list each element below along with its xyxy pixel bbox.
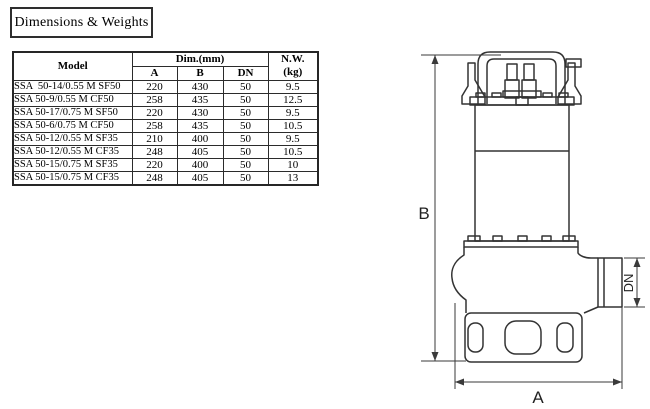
cell-a: 220 bbox=[132, 158, 177, 171]
cell-b: 400 bbox=[177, 158, 223, 171]
mounting-flange bbox=[464, 236, 578, 247]
cell-dn: 50 bbox=[223, 106, 268, 119]
cell-model: SSA 50-9/0.55 M CF50 bbox=[13, 93, 132, 106]
section-title: Dimensions & Weights bbox=[14, 15, 148, 31]
datasheet-page: Dimensions & Weights Model Dim.(mm) N.W.… bbox=[0, 0, 650, 409]
col-header-model: Model bbox=[13, 52, 132, 80]
cell-model: SSA 50-12/0.55 M SF35 bbox=[13, 132, 132, 145]
pump-base bbox=[465, 313, 582, 362]
cell-a: 258 bbox=[132, 93, 177, 106]
table-row: SSA 50-17/0.75 M SF50 220 430 50 9.5 bbox=[13, 106, 318, 119]
cell-dn: 50 bbox=[223, 145, 268, 158]
table-header-row-1: Model Dim.(mm) N.W. (kg) bbox=[13, 52, 318, 66]
motor-body bbox=[475, 105, 569, 241]
cell-dn: 50 bbox=[223, 132, 268, 145]
dimensions-weights-table: Model Dim.(mm) N.W. (kg) A B DN SSA 50-1… bbox=[12, 51, 319, 186]
col-header-nw-line2: (kg) bbox=[269, 66, 318, 79]
cell-dn: 50 bbox=[223, 93, 268, 106]
cell-b: 405 bbox=[177, 171, 223, 185]
cell-a: 220 bbox=[132, 106, 177, 119]
cell-model: SSA 50-15/0.75 M SF35 bbox=[13, 158, 132, 171]
cell-dn: 50 bbox=[223, 158, 268, 171]
col-header-nw-line1: N.W. bbox=[269, 53, 318, 66]
dimension-b-label: B bbox=[418, 204, 429, 223]
cell-model: SSA 50-17/0.75 M SF50 bbox=[13, 106, 132, 119]
cell-dn: 50 bbox=[223, 119, 268, 132]
col-header-a: A bbox=[132, 66, 177, 80]
cell-b: 405 bbox=[177, 145, 223, 158]
cell-nw: 12.5 bbox=[268, 93, 318, 106]
pump-technical-drawing: B A DN bbox=[405, 40, 650, 409]
cell-a: 210 bbox=[132, 132, 177, 145]
discharge-flange bbox=[598, 258, 622, 307]
cell-model: SSA 50-15/0.75 M CF35 bbox=[13, 171, 132, 185]
cell-nw: 10.5 bbox=[268, 119, 318, 132]
table-row: SSA 50-12/0.55 M CF35 248 405 50 10.5 bbox=[13, 145, 318, 158]
table-row: SSA 50-6/0.75 M CF50 258 435 50 10.5 bbox=[13, 119, 318, 132]
cell-b: 430 bbox=[177, 80, 223, 93]
table-row: SSA 50-15/0.75 M CF35 248 405 50 13 bbox=[13, 171, 318, 185]
cell-nw: 9.5 bbox=[268, 80, 318, 93]
cell-b: 435 bbox=[177, 119, 223, 132]
cell-nw: 9.5 bbox=[268, 106, 318, 119]
table-row: SSA 50-14/0.55 M SF50 220 430 50 9.5 bbox=[13, 80, 318, 93]
cell-a: 248 bbox=[132, 171, 177, 185]
col-header-nw: N.W. (kg) bbox=[268, 52, 318, 80]
col-header-dn: DN bbox=[223, 66, 268, 80]
dimension-a-label: A bbox=[532, 388, 544, 407]
cell-nw: 10.5 bbox=[268, 145, 318, 158]
section-title-box: Dimensions & Weights bbox=[10, 7, 153, 38]
cable-glands bbox=[505, 64, 536, 98]
cell-model: SSA 50-12/0.55 M CF35 bbox=[13, 145, 132, 158]
dimension-a: A bbox=[455, 303, 622, 407]
cell-a: 248 bbox=[132, 145, 177, 158]
pump-handle bbox=[478, 52, 581, 104]
cell-nw: 9.5 bbox=[268, 132, 318, 145]
cell-b: 400 bbox=[177, 132, 223, 145]
table-row: SSA 50-12/0.55 M SF35 210 400 50 9.5 bbox=[13, 132, 318, 145]
volute-casing bbox=[452, 247, 598, 313]
cell-b: 435 bbox=[177, 93, 223, 106]
cell-dn: 50 bbox=[223, 171, 268, 185]
cell-a: 220 bbox=[132, 80, 177, 93]
cell-b: 430 bbox=[177, 106, 223, 119]
col-header-dim-mm: Dim.(mm) bbox=[132, 52, 268, 66]
table-row: SSA 50-9/0.55 M CF50 258 435 50 12.5 bbox=[13, 93, 318, 106]
dimension-b: B bbox=[418, 55, 501, 361]
cell-model: SSA 50-6/0.75 M CF50 bbox=[13, 119, 132, 132]
cell-nw: 10 bbox=[268, 158, 318, 171]
col-header-b: B bbox=[177, 66, 223, 80]
cell-a: 258 bbox=[132, 119, 177, 132]
cell-model: SSA 50-14/0.55 M SF50 bbox=[13, 80, 132, 93]
cell-nw: 13 bbox=[268, 171, 318, 185]
cell-dn: 50 bbox=[223, 80, 268, 93]
dimension-dn-label: DN bbox=[621, 274, 636, 293]
table-row: SSA 50-15/0.75 M SF35 220 400 50 10 bbox=[13, 158, 318, 171]
dimension-dn: DN bbox=[621, 258, 645, 307]
